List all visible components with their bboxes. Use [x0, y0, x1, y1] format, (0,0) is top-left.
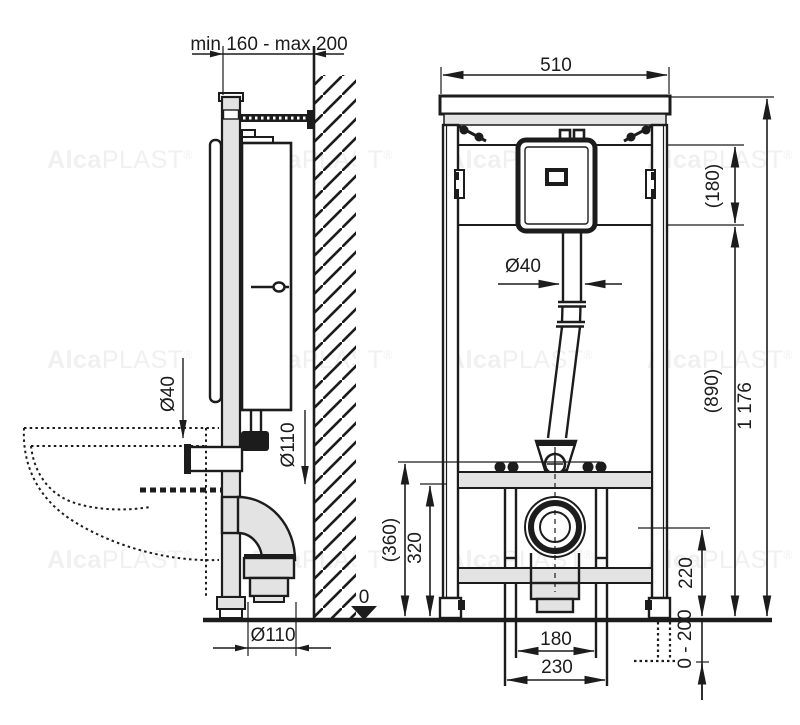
- label-180: (180): [703, 164, 724, 208]
- front-plate-side: [210, 140, 221, 402]
- hanger-hole: [627, 133, 636, 142]
- svg-text:AlcaPLAST®: AlcaPLAST®: [647, 546, 793, 574]
- label-320: 320: [405, 532, 426, 564]
- watermark-grid: AlcaPLAST® AlcaPLAST® AlcaPLAST® AlcaPLA…: [47, 146, 793, 574]
- svg-text:AlcaPLAST®: AlcaPLAST®: [47, 146, 193, 174]
- label-width: 510: [540, 55, 572, 76]
- technical-drawing: AlcaPLAST® AlcaPLAST® AlcaPLAST® AlcaPLA…: [0, 0, 800, 725]
- flush-elbow-fitting: [241, 431, 269, 451]
- wall-anchor: [307, 110, 314, 129]
- label-datum-0: 0: [359, 587, 370, 608]
- hanger-hole: [460, 126, 469, 135]
- top-rail: [444, 114, 666, 125]
- label-stud-180: 180: [540, 629, 572, 650]
- svg-text:AlcaPLAST®: AlcaPLAST®: [47, 346, 193, 374]
- hanger-hole: [475, 133, 484, 142]
- hanger-hole: [642, 126, 651, 135]
- foot-extension-dotted: [634, 622, 676, 661]
- label-fixing-230: 230: [541, 657, 573, 678]
- cistern-side: [242, 143, 291, 410]
- waste-adapter-2: [250, 578, 288, 596]
- label-dia110-bottom: Ø110: [250, 625, 295, 646]
- post-foot-plate: [220, 609, 242, 618]
- waste-adapter-1: [244, 558, 294, 578]
- label-dia40-side: Ø40: [158, 376, 179, 412]
- bolt-head: [508, 462, 519, 473]
- label-220: 220: [676, 557, 697, 589]
- drawing-canvas: AlcaPLAST® AlcaPLAST® AlcaPLAST® AlcaPLA…: [0, 0, 800, 725]
- label-dia110-side: Ø110: [278, 422, 299, 467]
- flush-valve-window: [547, 170, 566, 184]
- label-depth-range: min 160 - max 200: [190, 34, 347, 55]
- wall-hatch: [314, 75, 362, 618]
- top-plate: [440, 96, 670, 114]
- label-0-200: 0 - 200: [675, 609, 696, 668]
- foot-right: [649, 598, 670, 618]
- label-360: (360): [380, 518, 401, 562]
- bolt-head: [596, 462, 607, 473]
- fill-valve-knob: [274, 283, 285, 292]
- label-890: (890): [702, 369, 723, 413]
- bolt-head: [583, 462, 594, 473]
- flush-pipe-horizontal: [188, 447, 242, 471]
- bolt-head: [495, 462, 506, 473]
- foot-left: [440, 598, 461, 618]
- post-joint: [224, 110, 239, 119]
- outlet-step-2: [537, 599, 573, 612]
- flush-pipe-flange: [184, 444, 191, 474]
- label-1176: 1 176: [735, 382, 756, 430]
- wall-section: [314, 46, 366, 618]
- flush-pipe-front: [548, 231, 586, 438]
- label-dia40-front: Ø40: [505, 256, 541, 277]
- front-view: [440, 96, 676, 686]
- svg-text:AlcaPLAST®: AlcaPLAST®: [47, 546, 193, 574]
- waste-adapter-3: [254, 596, 284, 602]
- svg-text:AlcaPLAST®: AlcaPLAST®: [447, 346, 593, 374]
- post-foot: [217, 597, 245, 609]
